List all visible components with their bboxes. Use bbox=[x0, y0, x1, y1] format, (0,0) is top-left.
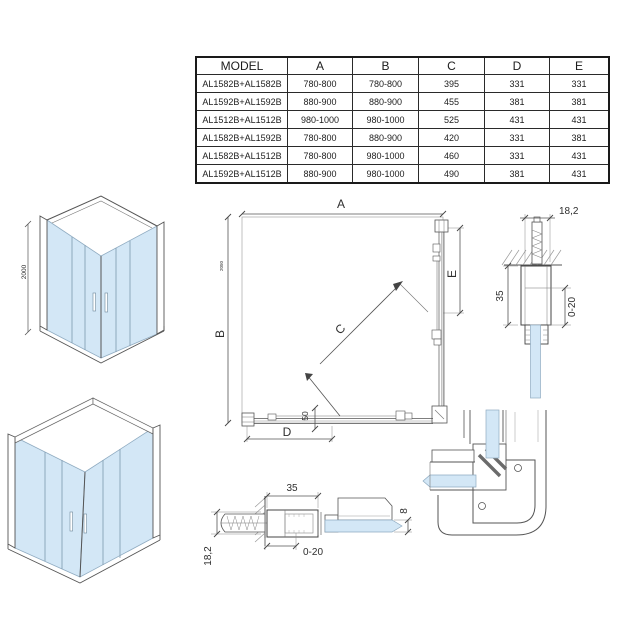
column-header-b: B bbox=[353, 57, 419, 75]
dim-e-label: E bbox=[445, 270, 459, 278]
column-header-d: D bbox=[485, 57, 550, 75]
dim-50-label: 50 bbox=[300, 411, 310, 421]
model-cell: AL1592B+AL1592B bbox=[196, 93, 288, 111]
dim-d-cell: 381 bbox=[485, 165, 550, 184]
model-cell: AL1582B+AL1592B bbox=[196, 129, 288, 147]
spec-sheet: MODEL A B C D E AL1582B+AL1582B 780-800 … bbox=[0, 0, 630, 630]
glass-panel bbox=[325, 520, 402, 532]
dim-e-cell: 381 bbox=[550, 93, 610, 111]
column-header-model: MODEL bbox=[196, 57, 288, 75]
dim-d-cell: 381 bbox=[485, 93, 550, 111]
dim-c-cell: 395 bbox=[419, 75, 485, 93]
dim-e-cell: 431 bbox=[550, 165, 610, 184]
dim-e-cell: 381 bbox=[550, 129, 610, 147]
dim-adjust-label: 0-20 bbox=[567, 297, 578, 317]
screw-hole bbox=[515, 465, 522, 472]
model-cell: AL1592B+AL1512B bbox=[196, 165, 288, 184]
dim-a-cell: 980-1000 bbox=[288, 111, 353, 129]
table-row: AL1592B+AL1592B 880-900 880-900 455 381 … bbox=[196, 93, 609, 111]
glass-panel bbox=[423, 475, 476, 487]
dim-b-cell: 980-1000 bbox=[353, 147, 419, 165]
dim-a-cell: 880-900 bbox=[288, 93, 353, 111]
table-row: AL1582B+AL1582B 780-800 780-800 395 331 … bbox=[196, 75, 609, 93]
dim-b-cell: 780-800 bbox=[353, 75, 419, 93]
dim-c-cell: 420 bbox=[419, 129, 485, 147]
dim-a-label: A bbox=[337, 197, 345, 211]
door-handle bbox=[70, 512, 73, 531]
dim-depth-label: 35 bbox=[495, 290, 506, 302]
dim-a-cell: 780-800 bbox=[288, 147, 353, 165]
model-dimension-table: MODEL A B C D E AL1582B+AL1582B 780-800 … bbox=[195, 56, 610, 184]
dim-c-cell: 525 bbox=[419, 111, 485, 129]
dim-width-label: 18,2 bbox=[559, 206, 579, 217]
dim-d-cell: 431 bbox=[485, 111, 550, 129]
dim-e-cell: 331 bbox=[550, 75, 610, 93]
column-header-c: C bbox=[419, 57, 485, 75]
dim-width-label: 18,2 bbox=[203, 546, 214, 566]
wall-profile-top bbox=[435, 220, 448, 232]
dim-d-cell: 331 bbox=[485, 75, 550, 93]
iso-view-top bbox=[0, 392, 190, 602]
dim-b-cell: 880-900 bbox=[353, 93, 419, 111]
table-header-row: MODEL A B C D E bbox=[196, 57, 609, 75]
dim-glass-label: 8 bbox=[399, 508, 410, 514]
table-row: AL1592B+AL1512B 880-900 980-1000 490 381… bbox=[196, 165, 609, 184]
wall-profile-detail-bottom: 35 0-20 18,2 8 bbox=[195, 470, 420, 630]
height-dimension-label: 2000 bbox=[21, 264, 28, 279]
dim-b-label: B bbox=[213, 330, 227, 338]
door-handle bbox=[105, 293, 108, 312]
column-header-e: E bbox=[550, 57, 610, 75]
dim-adjust-label: 0-20 bbox=[303, 547, 323, 558]
column-header-a: A bbox=[288, 57, 353, 75]
dim-b-cell: 880-900 bbox=[353, 129, 419, 147]
dim-c-line bbox=[320, 284, 400, 364]
dim-b-cell: 980-1000 bbox=[353, 165, 419, 184]
model-cell: AL1582B+AL1582B bbox=[196, 75, 288, 93]
dim-e-cell: 431 bbox=[550, 147, 610, 165]
dim-d-label: D bbox=[283, 425, 292, 439]
dim-b-cell: 980-1000 bbox=[353, 111, 419, 129]
screw-hole bbox=[479, 503, 486, 510]
dim-e-cell: 431 bbox=[550, 111, 610, 129]
model-cell: AL1582B+AL1512B bbox=[196, 147, 288, 165]
dim-b-small-label: 2050 bbox=[219, 260, 224, 271]
table-row: AL1582B+AL1512B 780-800 980-1000 460 331… bbox=[196, 147, 609, 165]
dim-a-cell: 780-800 bbox=[288, 129, 353, 147]
dim-depth-label: 35 bbox=[286, 483, 298, 494]
wall-profile-detail-top: 18,2 35 0-20 bbox=[492, 192, 630, 407]
wall-profile-left bbox=[242, 413, 254, 426]
dim-d-cell: 331 bbox=[485, 129, 550, 147]
dim-c-cell: 490 bbox=[419, 165, 485, 184]
dim-a-cell: 880-900 bbox=[288, 165, 353, 184]
table-row: AL1512B+AL1512B 980-1000 980-1000 525 43… bbox=[196, 111, 609, 129]
dim-c-cell: 460 bbox=[419, 147, 485, 165]
wall-hatch bbox=[502, 250, 561, 265]
table-row: AL1582B+AL1592B 780-800 880-900 420 331 … bbox=[196, 129, 609, 147]
model-cell: AL1512B+AL1512B bbox=[196, 111, 288, 129]
corner-joint-detail bbox=[418, 382, 630, 552]
door-handle bbox=[93, 293, 96, 311]
dim-c-cell: 455 bbox=[419, 93, 485, 111]
glass-panel bbox=[486, 410, 499, 458]
dim-c-label: C bbox=[332, 321, 348, 337]
door-handle bbox=[84, 514, 87, 533]
iso-view-front: 2000 bbox=[15, 190, 190, 390]
dim-a-cell: 780-800 bbox=[288, 75, 353, 93]
dim-d-cell: 331 bbox=[485, 147, 550, 165]
